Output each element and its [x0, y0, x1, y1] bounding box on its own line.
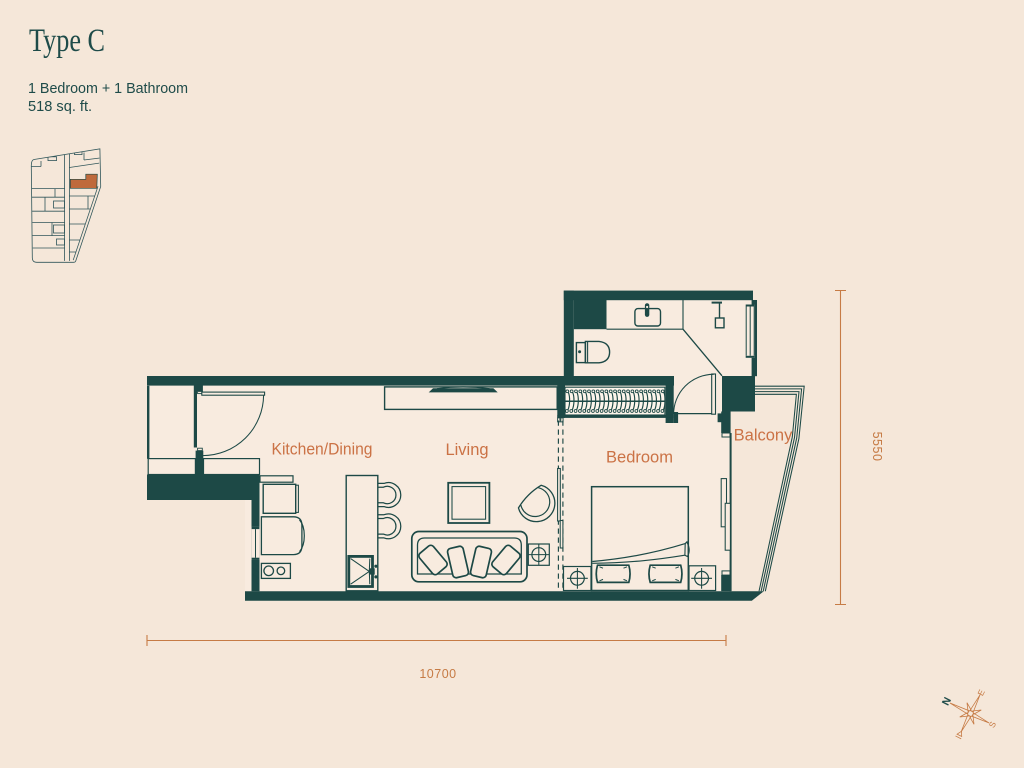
- svg-text:518 sq. ft.: 518 sq. ft.: [28, 99, 92, 115]
- svg-text:Bedroom: Bedroom: [606, 449, 673, 467]
- svg-text:Balcony: Balcony: [734, 427, 793, 445]
- svg-text:1 Bedroom + 1 Bathroom: 1 Bedroom + 1 Bathroom: [28, 81, 188, 97]
- svg-text:10700: 10700: [419, 667, 456, 681]
- svg-text:Kitchen/Dining: Kitchen/Dining: [272, 441, 373, 459]
- svg-text:Living: Living: [445, 441, 488, 459]
- svg-text:5550: 5550: [870, 432, 884, 462]
- svg-text:Type C: Type C: [29, 23, 105, 59]
